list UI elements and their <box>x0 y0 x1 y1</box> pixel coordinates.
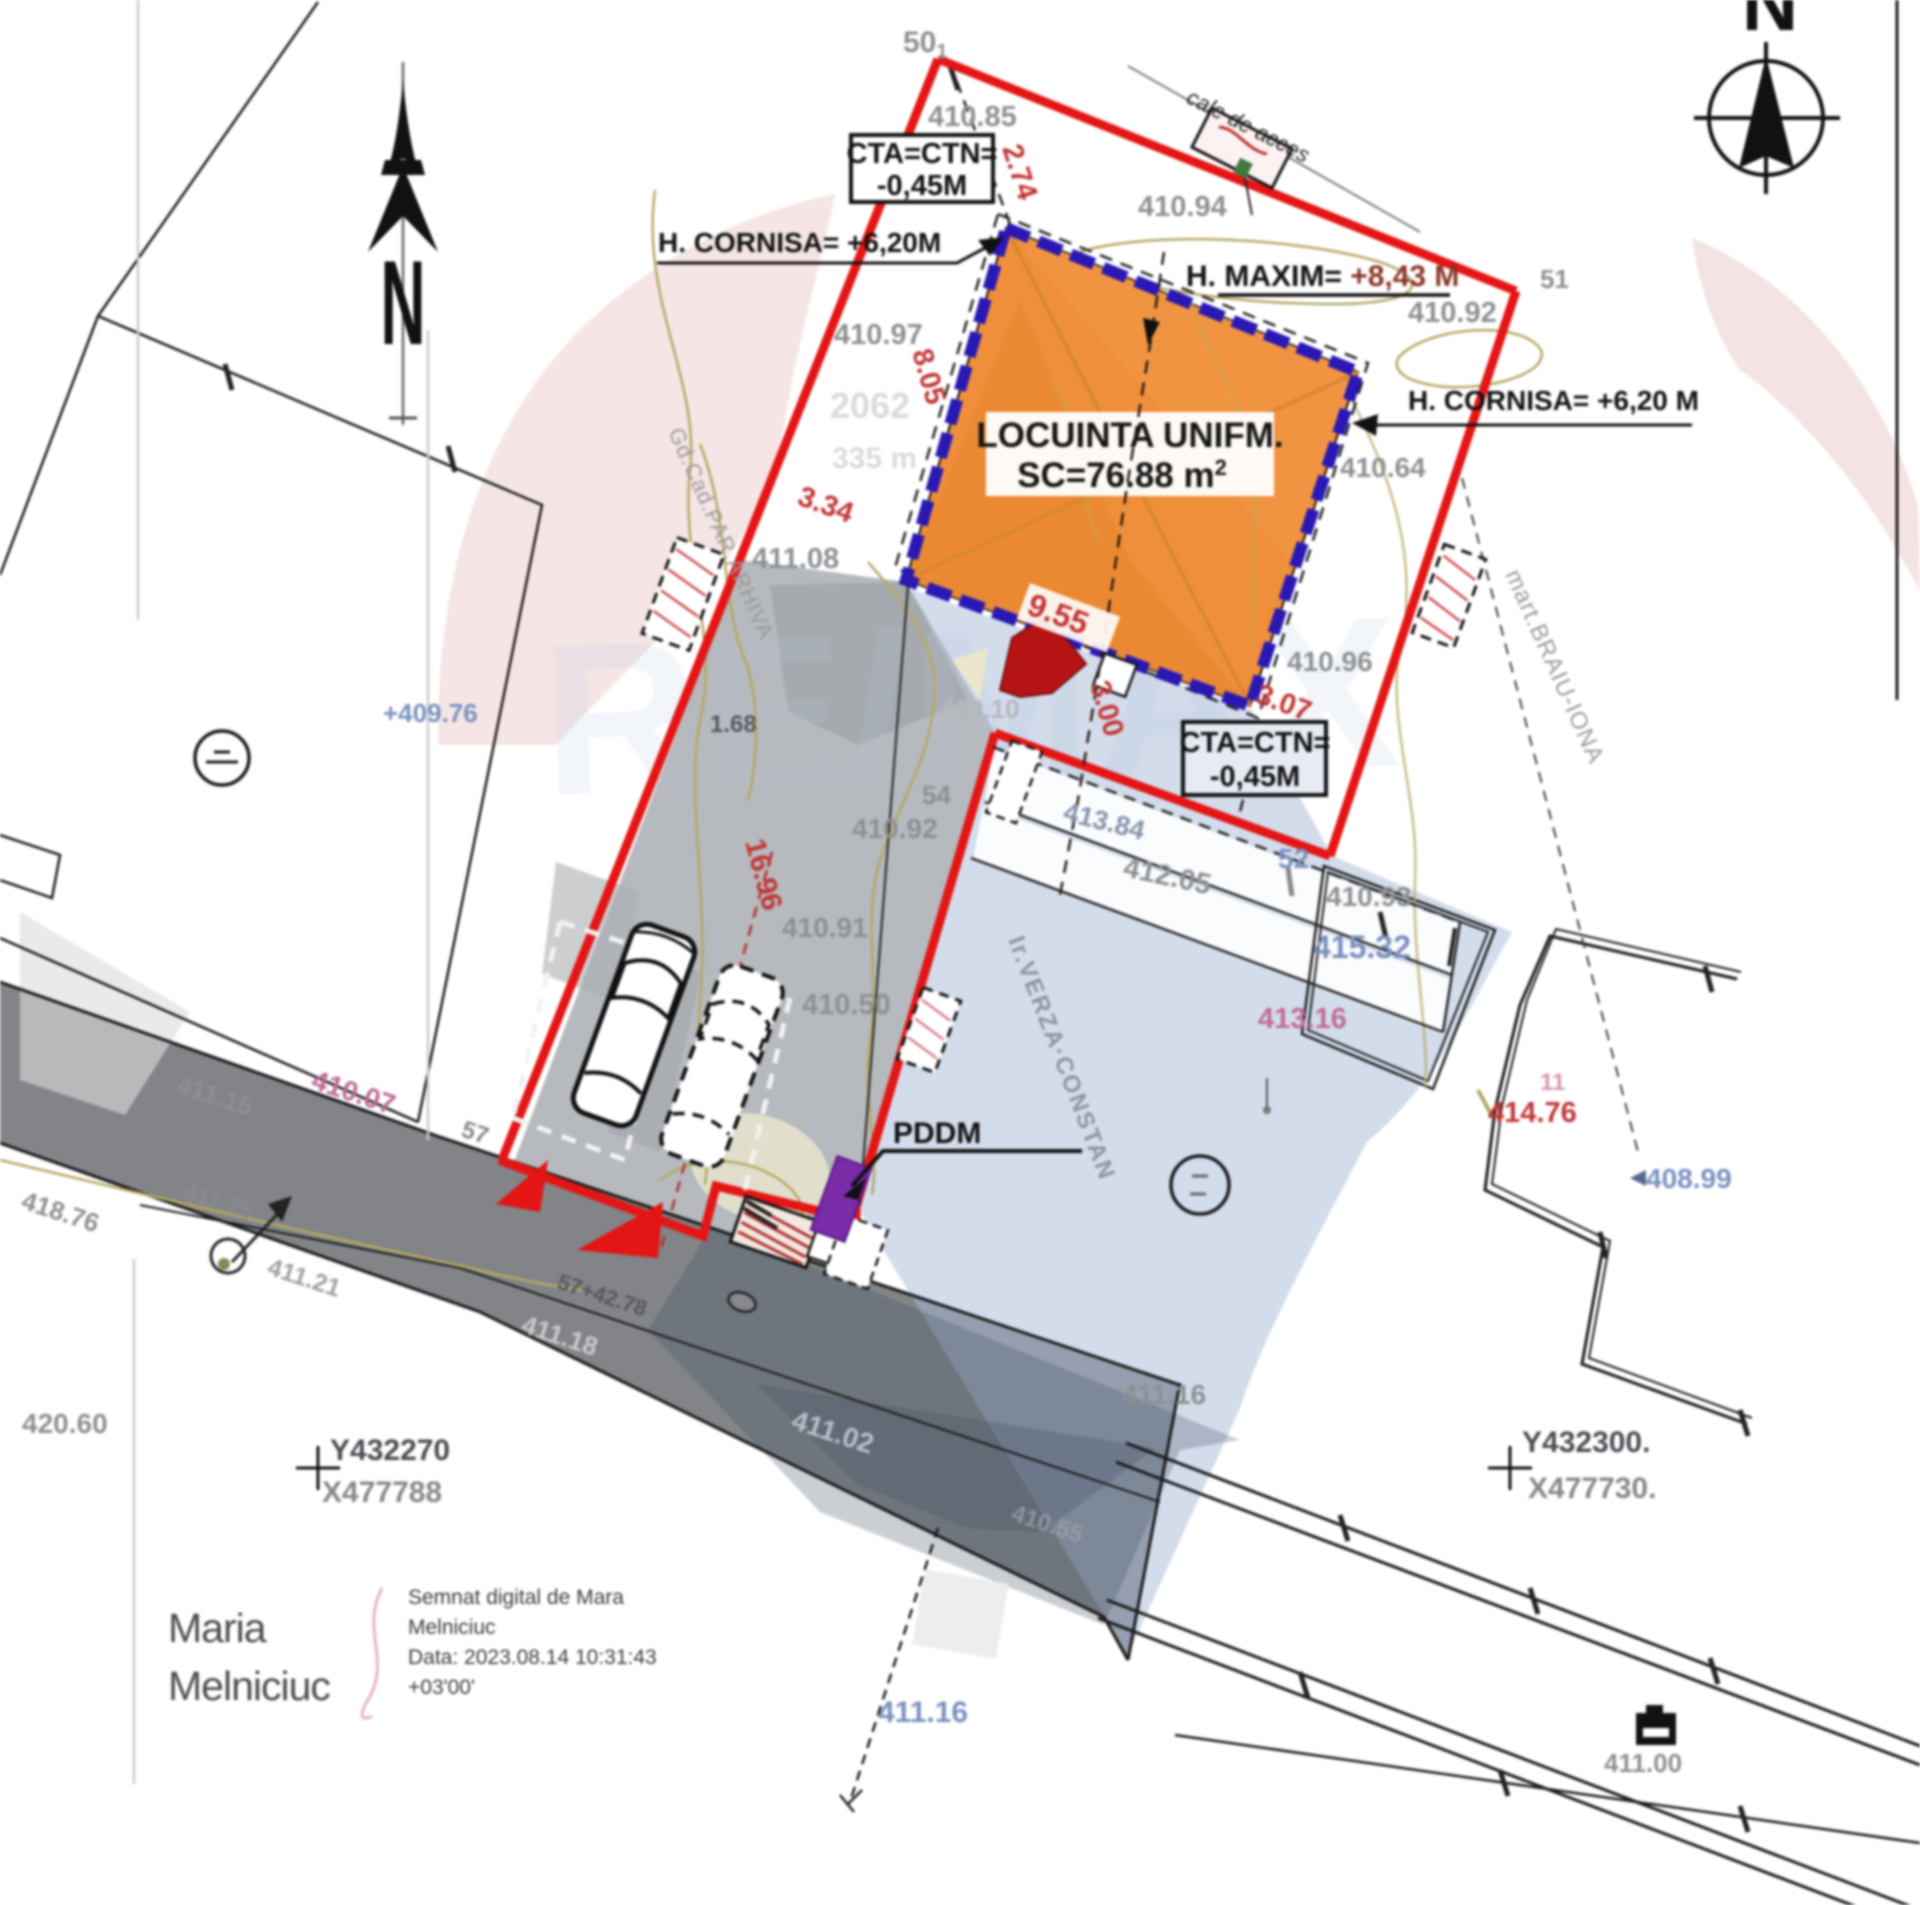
svg-text:Semnat digital de Mara: Semnat digital de Mara <box>408 1586 624 1609</box>
svg-text:N: N <box>1742 0 1798 47</box>
svg-text:51: 51 <box>1540 264 1569 294</box>
svg-text:411.00: 411.00 <box>1604 1748 1682 1778</box>
svg-text:335 m: 335 m <box>832 442 917 475</box>
svg-text:414.76: 414.76 <box>1488 1097 1577 1129</box>
svg-text:410.93: 410.93 <box>1326 881 1412 912</box>
svg-text:-0,45M: -0,45M <box>1210 761 1300 793</box>
svg-text:410.94: 410.94 <box>1138 191 1227 223</box>
svg-text:H. CORNISA= +6,20 M: H. CORNISA= +6,20 M <box>1408 385 1699 416</box>
svg-text:-0,45M: -0,45M <box>877 170 967 202</box>
svg-text:Y432300.: Y432300. <box>1522 1426 1650 1459</box>
svg-text:410.92: 410.92 <box>852 813 938 844</box>
svg-text:410.92: 410.92 <box>1408 297 1497 329</box>
svg-text:410.10: 410.10 <box>940 694 1020 724</box>
svg-text:mart.BRAIU-IONA: mart.BRAIU-IONA <box>1500 565 1610 768</box>
svg-text:11: 11 <box>1540 1069 1565 1096</box>
svg-text:54: 54 <box>922 780 951 810</box>
svg-text:411.16: 411.16 <box>878 1696 968 1729</box>
svg-text:N: N <box>380 236 425 370</box>
svg-text:H. MAXIM= +8,43 M: H. MAXIM= +8,43 M <box>1186 260 1459 293</box>
svg-text:410.85: 410.85 <box>928 101 1017 133</box>
svg-text:501: 501 <box>903 26 948 63</box>
svg-text:2062: 2062 <box>830 385 910 426</box>
svg-text:52: 52 <box>1278 843 1309 874</box>
svg-text:2.74: 2.74 <box>995 140 1043 204</box>
svg-text:418.76: 418.76 <box>18 1185 103 1238</box>
svg-text:410.97: 410.97 <box>834 319 923 351</box>
svg-text:8.05: 8.05 <box>905 345 951 408</box>
svg-text:X477730.: X477730. <box>1528 1472 1656 1505</box>
svg-text:+409.76: +409.76 <box>383 698 478 728</box>
svg-text:410.64: 410.64 <box>1340 452 1426 483</box>
svg-text:Melniciuc: Melniciuc <box>408 1616 496 1639</box>
svg-text:410.91: 410.91 <box>782 912 868 943</box>
svg-text:410.50: 410.50 <box>802 989 891 1021</box>
svg-text:Data: 2023.08.14 10:31:43: Data: 2023.08.14 10:31:43 <box>408 1646 657 1669</box>
svg-text:SC=76.88 m2: SC=76.88 m2 <box>1017 455 1227 495</box>
svg-text:Maria: Maria <box>168 1605 267 1651</box>
svg-text:CTA=CTN=: CTA=CTN= <box>847 138 998 170</box>
svg-text:415.32: 415.32 <box>1313 929 1411 965</box>
svg-text:410.96: 410.96 <box>1287 646 1373 677</box>
svg-text:Melniciuc: Melniciuc <box>168 1663 330 1709</box>
svg-text:CTA=CTN=: CTA=CTN= <box>1180 727 1331 759</box>
svg-text:411.16: 411.16 <box>1122 1379 1206 1410</box>
svg-text:420.60: 420.60 <box>22 1408 108 1439</box>
svg-text:+03'00': +03'00' <box>408 1676 475 1699</box>
svg-text:LOCUINTA UNIFM.: LOCUINTA UNIFM. <box>976 416 1283 455</box>
svg-text:Y432270: Y432270 <box>330 1434 450 1467</box>
svg-text:1.68: 1.68 <box>710 711 757 738</box>
svg-text:PDDM: PDDM <box>893 1117 981 1150</box>
svg-text:H. CORNISA= +6,20M: H. CORNISA= +6,20M <box>658 227 941 258</box>
svg-text:3.34: 3.34 <box>794 481 858 530</box>
svg-text:411.08: 411.08 <box>752 543 839 575</box>
svg-text:413.16: 413.16 <box>1258 1003 1347 1035</box>
svg-text:X477788: X477788 <box>322 1476 442 1509</box>
svg-text:408.99: 408.99 <box>1646 1163 1732 1194</box>
